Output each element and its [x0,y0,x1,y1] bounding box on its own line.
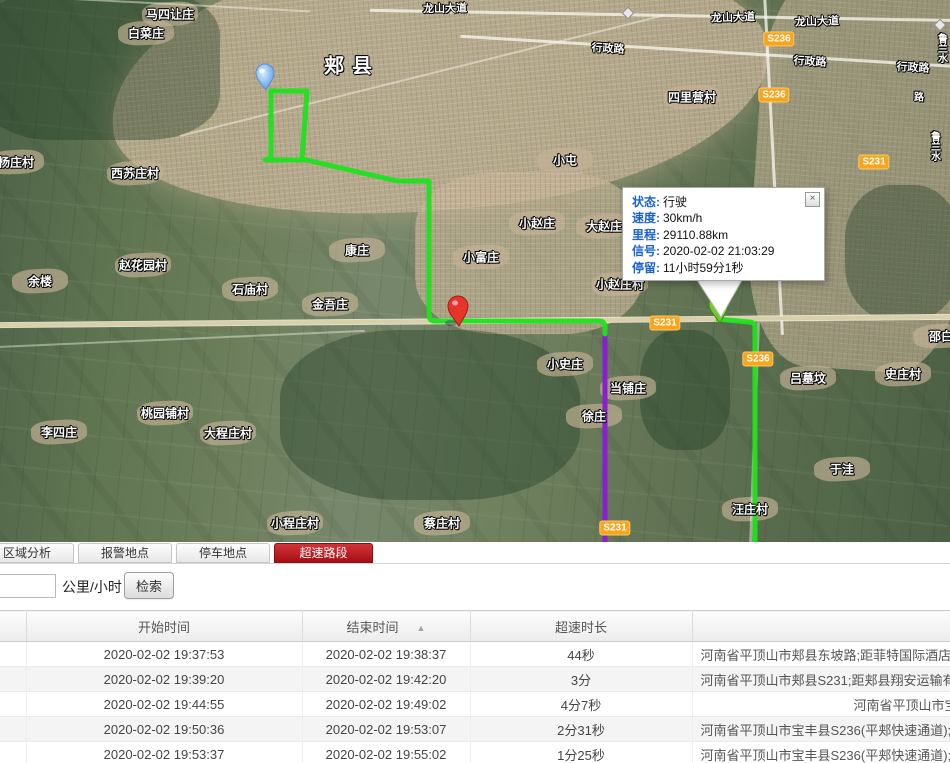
tab-alarm-locations[interactable]: 报警地点 [78,543,172,563]
popup-row-stay: 停留:11小时59分1秒 [632,260,816,276]
cell-end-time: 2020-02-02 19:38:37 [302,642,470,667]
table-row[interactable]: 2020-02-02 19:53:37 2020-02-02 19:55:02 … [0,742,950,763]
table-row[interactable]: 2020-02-02 19:37:53 2020-02-02 19:38:37 … [0,642,950,667]
col-header-start-time[interactable]: 开始时间 [26,611,302,642]
cell-duration: 3分 [470,667,692,692]
start-balloon-marker[interactable] [256,64,274,90]
map-view[interactable]: 马四让庄白菜庄龙山大道龙山大道龙山大道行政路行政路行政路郏县四里营村小屯杨庄村西… [0,0,950,542]
popup-row-mileage: 里程:29110.88km [632,227,816,243]
speeding-table: 开始时间 结束时间▲ 超速时长 2020-02-02 19:37:53 2020… [0,610,950,763]
cell-empty [0,642,26,667]
cell-duration: 4分7秒 [470,692,692,717]
cell-start-time: 2020-02-02 19:53:37 [26,742,302,763]
cell-duration: 2分31秒 [470,717,692,742]
search-row: 公里/小时 检索 [0,564,950,610]
cell-location: 河南省平顶山市宝 [692,692,950,717]
cell-empty [0,717,26,742]
col-header-empty [0,611,26,642]
table-row[interactable]: 2020-02-02 19:44:55 2020-02-02 19:49:02 … [0,692,950,717]
tab-parking-locations[interactable]: 停车地点 [176,543,270,563]
cell-duration: 44秒 [470,642,692,667]
search-button[interactable]: 检索 [124,572,174,599]
table-header-row: 开始时间 结束时间▲ 超速时长 [0,611,950,642]
popup-row-status: 状态:行驶 [632,194,816,210]
col-header-end-time[interactable]: 结束时间▲ [302,611,470,642]
cell-location: 河南省平顶山市郏县S231;距郏县翔安运输有 [692,667,950,692]
popup-close-button[interactable]: × [805,192,820,207]
cell-end-time: 2020-02-02 19:53:07 [302,717,470,742]
cell-empty [0,667,26,692]
cell-end-time: 2020-02-02 19:42:20 [302,667,470,692]
tab-bar: 区域分析 报警地点 停车地点 超速路段 [0,542,950,564]
popup-row-signal: 信号:2020-02-02 21:03:29 [632,243,816,259]
vehicle-track [716,319,755,542]
sort-asc-icon: ▲ [417,623,426,633]
cell-start-time: 2020-02-02 19:37:53 [26,642,302,667]
cell-end-time: 2020-02-02 19:55:02 [302,742,470,763]
cell-empty [0,692,26,717]
popup-row-speed: 速度:30km/h [632,210,816,226]
cell-start-time: 2020-02-02 19:39:20 [26,667,302,692]
speed-threshold-input[interactable] [0,574,56,598]
vehicle-tracking-app: 马四让庄白菜庄龙山大道龙山大道龙山大道行政路行政路行政路郏县四里营村小屯杨庄村西… [0,0,950,763]
col-header-location [692,611,950,642]
cell-location: 河南省平顶山市宝丰县S236(平郏快速通道); [692,717,950,742]
tab-speeding-sections[interactable]: 超速路段 [274,543,373,563]
cell-start-time: 2020-02-02 19:44:55 [26,692,302,717]
cell-duration: 1分25秒 [470,742,692,763]
cell-start-time: 2020-02-02 19:50:36 [26,717,302,742]
table-row[interactable]: 2020-02-02 19:50:36 2020-02-02 19:53:07 … [0,717,950,742]
vehicle-track [265,91,307,160]
table-row[interactable]: 2020-02-02 19:39:20 2020-02-02 19:42:20 … [0,667,950,692]
cell-end-time: 2020-02-02 19:49:02 [302,692,470,717]
cell-location: 河南省平顶山市郏县东坡路;距菲特国际酒店 [692,642,950,667]
unit-label: 公里/小时 [62,577,122,597]
tab-region-analysis[interactable]: 区域分析 [0,543,74,563]
popup-tail [697,280,742,317]
cell-empty [0,742,26,763]
col-header-duration[interactable]: 超速时长 [470,611,692,642]
vehicle-info-popup: × 状态:行驶 速度:30km/h 里程:29110.88km 信号:2020-… [622,187,825,281]
cell-location: 河南省平顶山市宝丰县S236(平郏快速通道); [692,742,950,763]
